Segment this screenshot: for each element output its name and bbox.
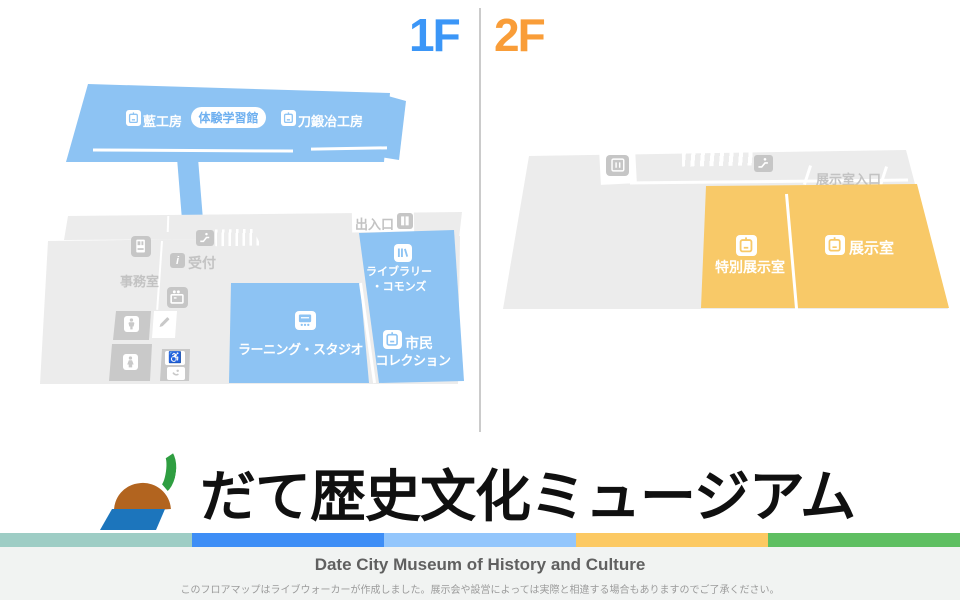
citizen-collection-label: コレクション	[374, 350, 452, 369]
workshop-frame-icon	[126, 110, 141, 126]
stripe-segment	[768, 533, 960, 547]
learning-studio-room	[226, 280, 372, 386]
library-commons-label: ・コモンズ	[366, 278, 432, 294]
elevator-icon	[606, 155, 629, 176]
museum-logo	[98, 443, 198, 537]
door-icon	[397, 213, 413, 229]
info-icon: i	[170, 253, 185, 268]
katana-kaji-kobo-label: 刀鍛冶工房	[298, 111, 363, 130]
library-commons-label: ライブラリー	[366, 263, 432, 279]
ai-kobo-label: 藍工房	[143, 111, 182, 130]
picture-frame-icon	[736, 235, 757, 256]
escalator-icon	[754, 155, 773, 172]
projector-screen-icon	[295, 311, 316, 330]
picture-frame-icon	[383, 330, 402, 349]
learning-studio-label: ラーニング・スタジオ	[238, 339, 360, 358]
museum-title-jp: だて歴史文化ミュージアム	[200, 452, 855, 533]
stripe-segment	[384, 533, 576, 547]
stairs-hatch	[682, 151, 756, 166]
baby-care-icon	[167, 367, 185, 380]
footer-stripe	[0, 533, 960, 547]
museum-title-en: Date City Museum of History and Culture	[0, 547, 960, 575]
picture-frame-icon	[825, 235, 845, 255]
connecting-corridor	[175, 157, 207, 222]
logo-helmet-brim	[100, 507, 170, 533]
exhibit-room-label: 展示室	[849, 237, 894, 258]
taiken-gakushukan-pill: 体験学習館	[191, 107, 266, 128]
escalator-icon	[196, 230, 214, 246]
floor1-label: 1F	[409, 8, 459, 62]
floor2-label: 2F	[494, 8, 544, 62]
map-disclaimer: このフロアマップはライブウォーカーが作成しました。展示会や設営によっては実際と相…	[0, 575, 960, 596]
workshop-frame-icon	[281, 110, 296, 126]
vending-machine-icon	[131, 236, 151, 257]
books-icon	[394, 244, 412, 262]
entrance-label: 出入口	[355, 214, 394, 233]
office-label: 事務室	[120, 271, 159, 290]
coin-locker-icon	[167, 287, 188, 308]
floor-map-page: 1F 2F 藍工房 体験学習館 刀鍛冶工房	[0, 0, 960, 600]
special-exhibit-label: 特別展示室	[702, 257, 798, 277]
pencil-icon	[156, 314, 173, 331]
stripe-segment	[0, 533, 192, 547]
reception-label: 受付	[188, 253, 216, 273]
womens-toilet-icon	[123, 354, 138, 370]
wheelchair-icon: ♿	[165, 351, 185, 365]
mens-toilet-icon	[124, 316, 139, 332]
map-divider	[479, 8, 481, 432]
stripe-segment	[192, 533, 384, 547]
footer: Date City Museum of History and Culture …	[0, 547, 960, 600]
stripe-segment	[576, 533, 768, 547]
